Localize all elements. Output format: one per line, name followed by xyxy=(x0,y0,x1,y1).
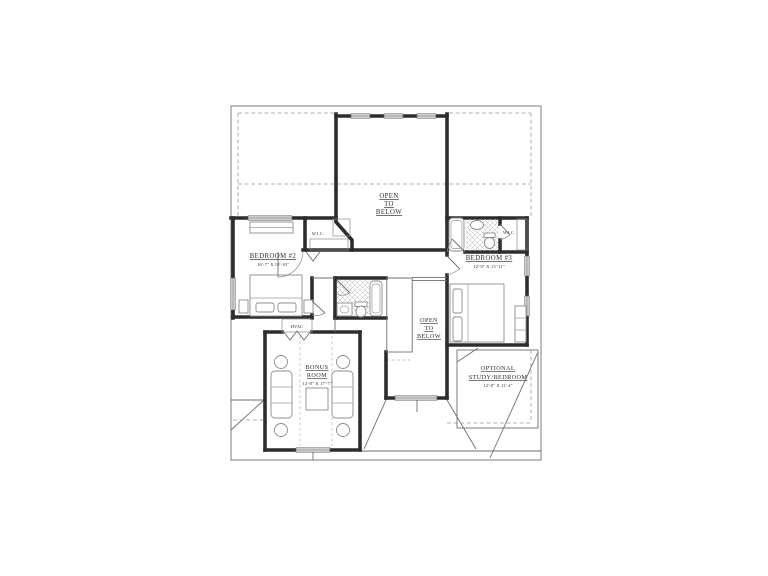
window xyxy=(351,114,370,118)
bedroom2-furniture xyxy=(239,222,313,316)
window xyxy=(384,114,403,118)
window xyxy=(395,396,437,400)
dresser xyxy=(250,222,293,233)
bed xyxy=(250,275,302,316)
bedroom2-name: BEDROOM #2 xyxy=(250,253,297,260)
toilet xyxy=(484,233,495,249)
end-table xyxy=(337,356,350,369)
open-below-lower-line2: TO xyxy=(425,325,434,332)
sofa xyxy=(271,371,292,418)
window xyxy=(417,114,436,118)
window xyxy=(248,216,292,220)
tub xyxy=(370,281,382,316)
optional-study-name-line1: OPTIONAL xyxy=(481,365,515,372)
door-swing xyxy=(447,256,460,275)
dresser xyxy=(515,306,526,342)
open-below-upper-line2: TO xyxy=(384,201,394,208)
main-stairs xyxy=(386,278,412,352)
tub xyxy=(449,218,464,251)
wic-left-stairs xyxy=(306,219,350,261)
window xyxy=(231,278,235,310)
coffee-table xyxy=(306,388,328,410)
bonus-room-name-line1: BONUS xyxy=(306,364,329,371)
bedroom3-name: BEDROOM #3 xyxy=(466,255,513,262)
optional-study-outline xyxy=(457,350,538,428)
bed xyxy=(450,284,504,342)
floor-plan-drawing: OPEN TO BELOW OPEN TO BELOW BEDROOM #2 1… xyxy=(0,0,768,576)
door-swing xyxy=(312,301,325,316)
floor-plan-page: OPEN TO BELOW OPEN TO BELOW BEDROOM #2 1… xyxy=(0,0,768,576)
wic-left-label: W.I.C. xyxy=(312,231,324,236)
toilet xyxy=(355,302,367,317)
wic-right-label: W.I.C. xyxy=(503,230,515,235)
open-below-upper-line3: BELOW xyxy=(376,209,402,216)
nightstand xyxy=(239,300,248,313)
optional-study-name-line2: STUDY/BEDROOM xyxy=(469,374,528,381)
bedroom2-dims: 16'-7" X 15'-10" xyxy=(257,262,289,267)
nightstand xyxy=(304,300,313,313)
bathroom-middle xyxy=(337,280,382,317)
sink xyxy=(471,221,484,230)
open-below-lower-line1: OPEN xyxy=(420,317,438,324)
window xyxy=(525,256,529,276)
end-table xyxy=(275,424,288,437)
open-below-upper-line1: OPEN xyxy=(379,193,398,200)
window xyxy=(296,448,330,452)
bonus-room-dims: 12'-0" X 17'-7" xyxy=(302,381,331,386)
open-below-lower-line3: BELOW xyxy=(417,333,441,340)
bedroom3-dims: 12'-0" X 13'-11" xyxy=(473,264,505,269)
end-table xyxy=(275,356,288,369)
sofa xyxy=(332,371,353,418)
bedroom3-furniture xyxy=(450,284,526,342)
hvac-label: HVAC xyxy=(291,324,304,329)
bathroom-right xyxy=(449,218,527,251)
hvac-closet xyxy=(282,319,312,340)
optional-study-dims: 12'-0" X 11'-4" xyxy=(483,383,512,388)
sink xyxy=(337,303,352,316)
end-table xyxy=(337,424,350,437)
bonus-room-name-line2: ROOM xyxy=(307,372,327,379)
